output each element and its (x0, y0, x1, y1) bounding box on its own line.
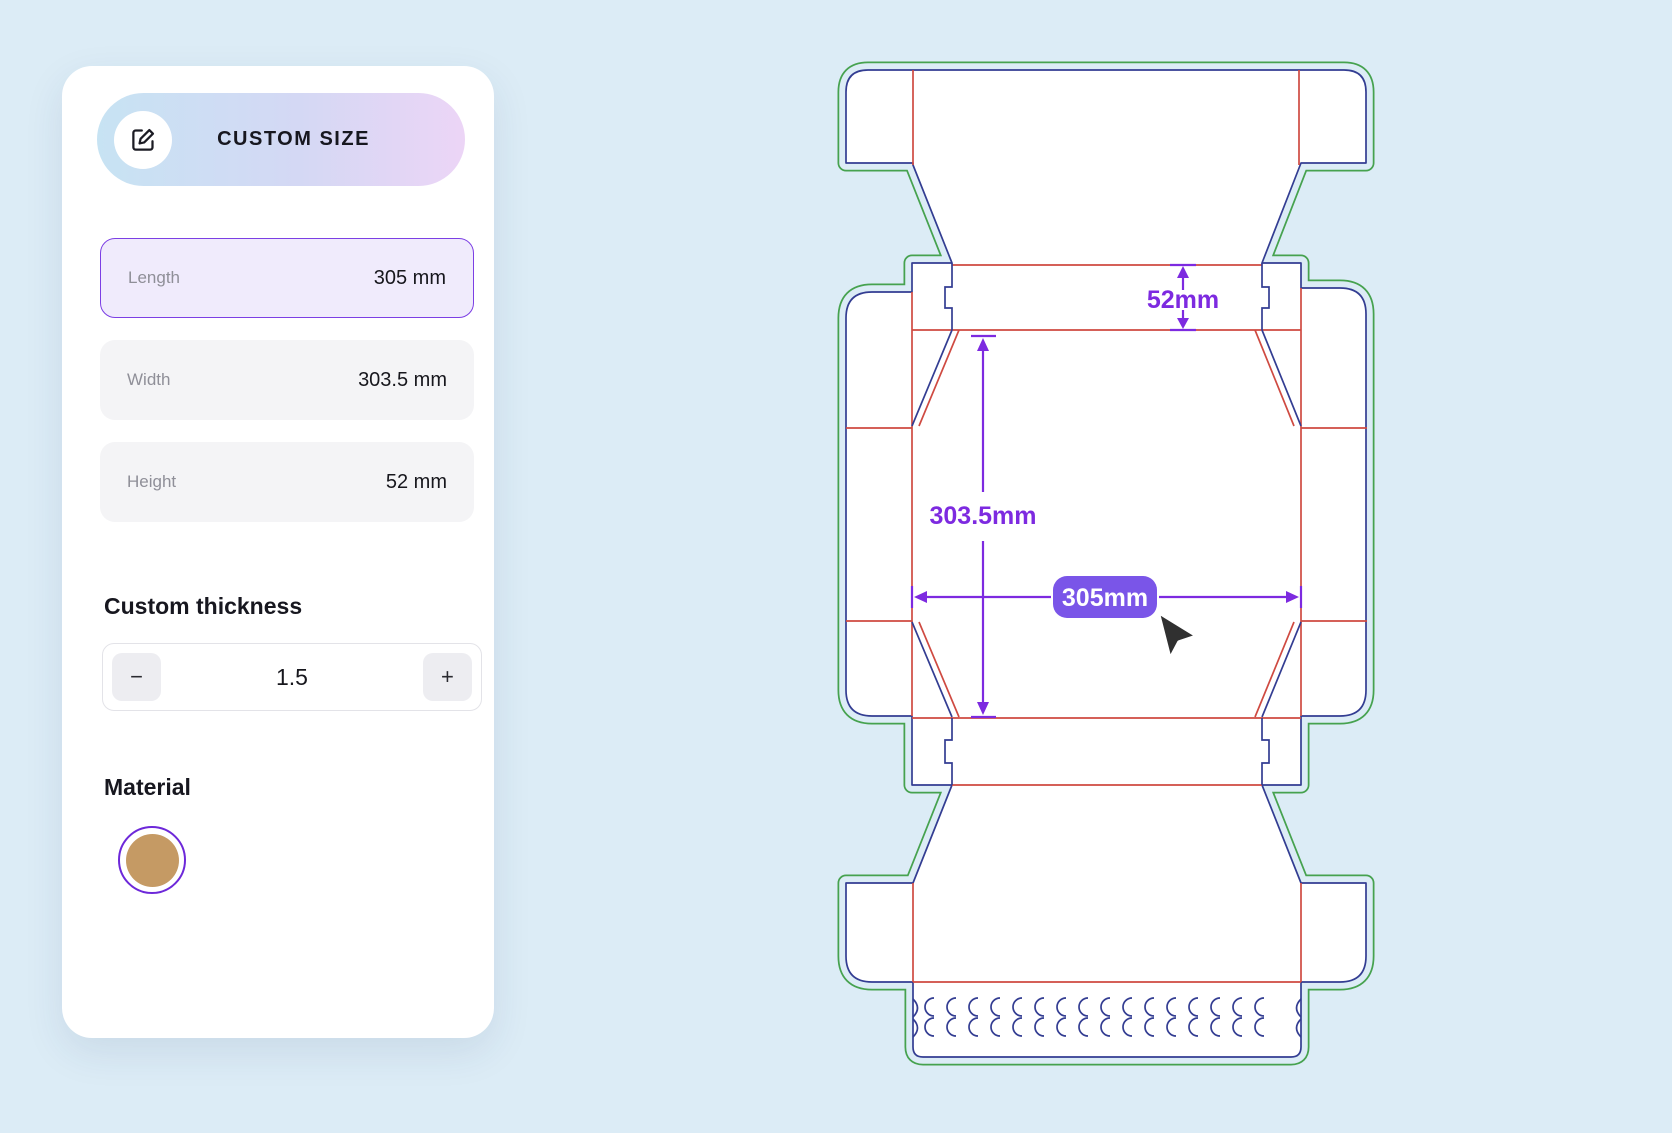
custom-size-button[interactable]: CUSTOM SIZE (97, 93, 465, 186)
material-swatch-kraft[interactable] (118, 826, 186, 894)
length-dimension-label: 305mm (1062, 584, 1148, 612)
width-label: Width (127, 370, 170, 390)
edit-icon (114, 111, 172, 169)
material-heading: Material (104, 774, 191, 801)
width-dimension-label: 303.5mm (929, 502, 1036, 530)
height-dimension-label: 52mm (1147, 286, 1219, 314)
app-background: { "page": { "background": "#dcecf6" }, "… (0, 0, 1672, 1128)
thickness-decrease-button[interactable]: − (112, 653, 161, 701)
thickness-stepper: − 1.5 + (102, 643, 482, 711)
height-label: Height (127, 472, 176, 492)
custom-thickness-heading: Custom thickness (104, 593, 302, 620)
bleed-outline (846, 70, 1366, 1057)
width-value: 303.5 mm (358, 369, 447, 392)
length-label: Length (128, 268, 180, 288)
height-field[interactable]: Height 52 mm (100, 442, 474, 522)
thickness-increase-button[interactable]: + (423, 653, 472, 701)
material-swatch-color (126, 834, 179, 887)
custom-size-label: CUSTOM SIZE (172, 128, 415, 151)
settings-panel: CUSTOM SIZE Length 305 mm Width 303.5 mm… (62, 66, 494, 1038)
thickness-value: 1.5 (276, 664, 308, 691)
height-value: 52 mm (386, 471, 447, 494)
length-field[interactable]: Length 305 mm (100, 238, 474, 318)
width-field[interactable]: Width 303.5 mm (100, 340, 474, 420)
length-value: 305 mm (374, 267, 446, 290)
